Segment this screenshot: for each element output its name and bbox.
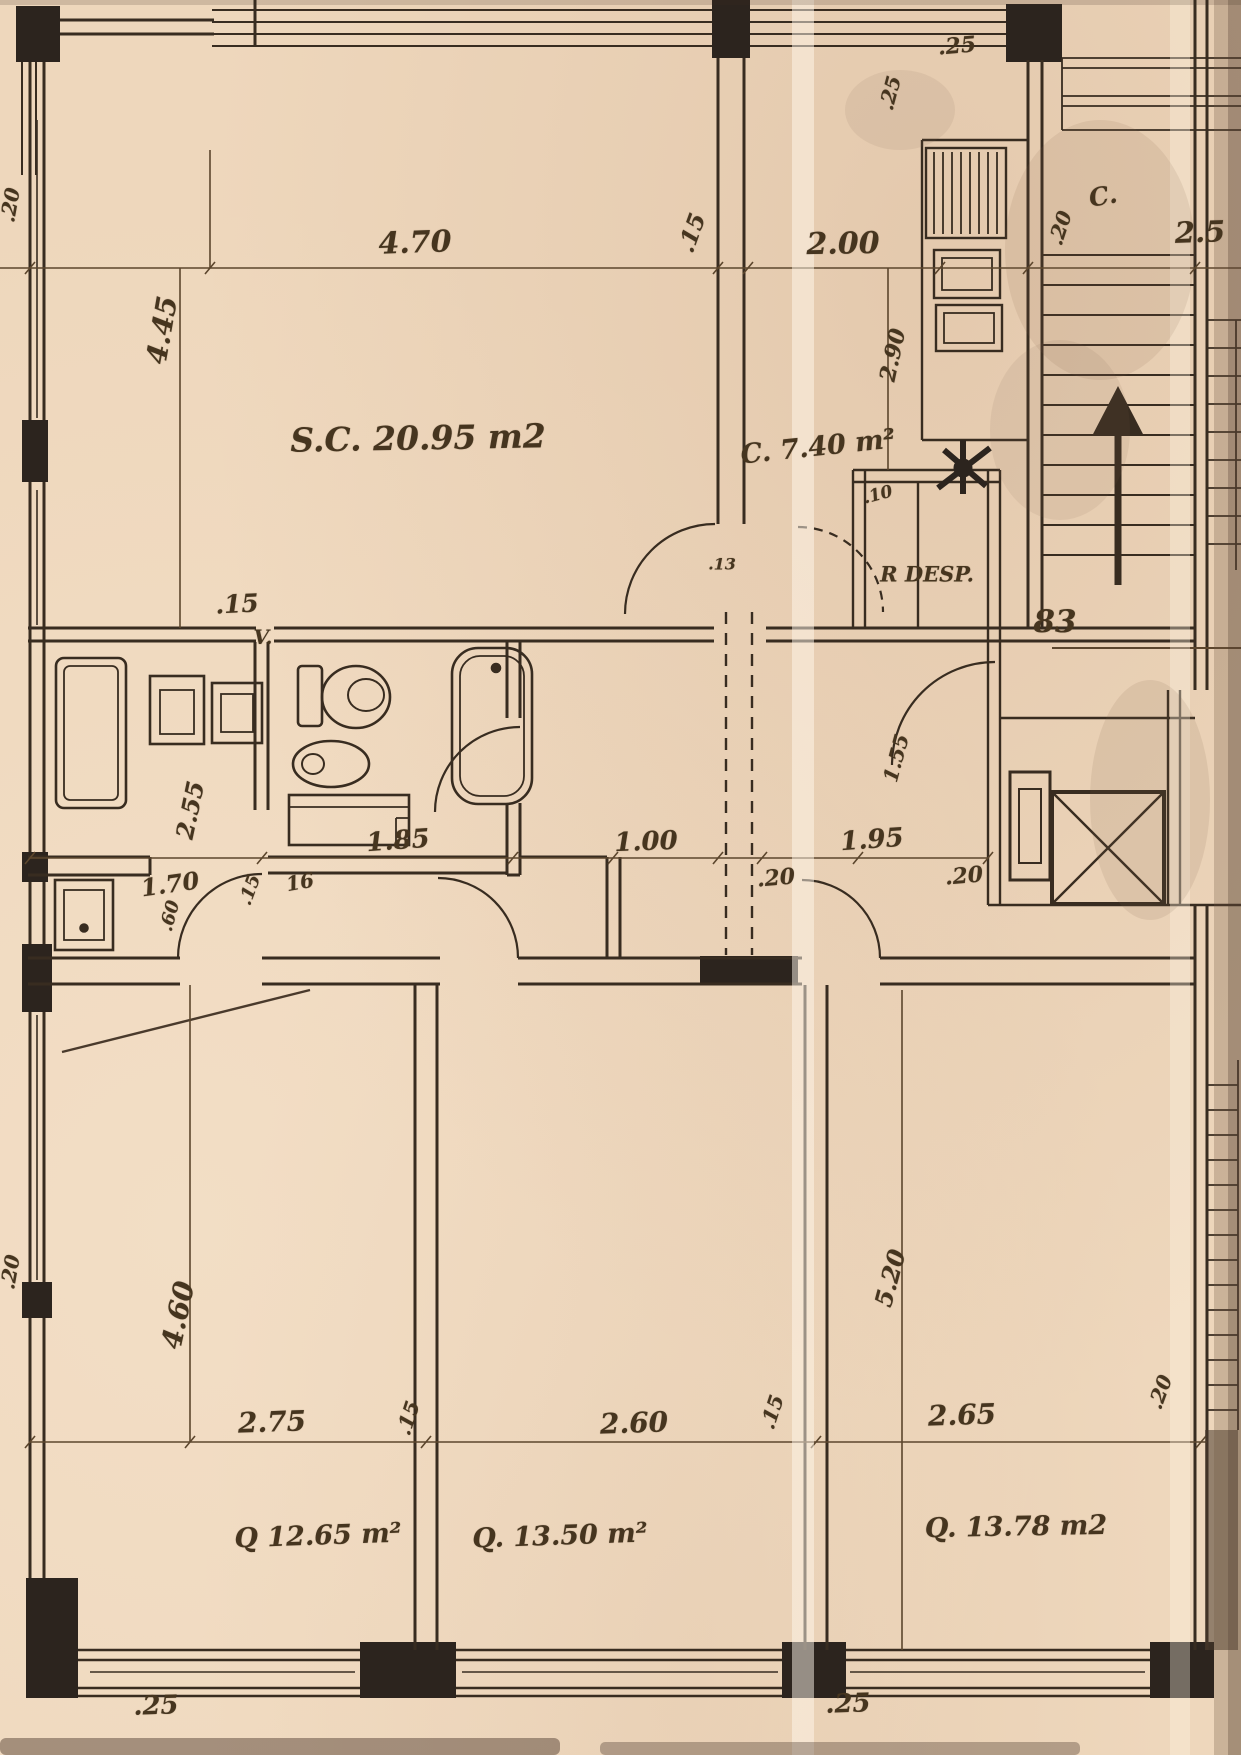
- label-vent: V.: [254, 625, 273, 649]
- toilet-icon: [322, 666, 390, 728]
- dim-250-right: 2.5: [1174, 214, 1226, 250]
- hall-dashed-lines: [726, 612, 752, 955]
- room-pantry: R DESP.: [880, 562, 974, 587]
- room-living: S.C. 20.95 m2: [290, 416, 546, 459]
- bidet-icon: [293, 741, 369, 787]
- dim-275: 2.75: [237, 1404, 306, 1439]
- dim-100: 1.00: [614, 826, 678, 858]
- dim-185: 1.85: [365, 824, 430, 858]
- dim-15-bath: .15: [215, 588, 260, 619]
- dim-470: 4.70: [378, 224, 452, 262]
- dim-25-bottom-r: .25: [825, 1688, 871, 1720]
- ink-blot: [938, 440, 990, 494]
- floor-plan: 4.70.152.00.25.25C..202.54.45S.C. 20.95 …: [0, 0, 1241, 1755]
- dim-195: 1.95: [839, 823, 904, 857]
- room-bedroom-2: Q. 13.50 m²: [472, 1517, 648, 1554]
- dim-13-hall: .13: [708, 555, 736, 574]
- dim-260: 2.60: [599, 1405, 668, 1440]
- toilet-tank-icon: [298, 666, 322, 726]
- dim-16: 16: [284, 868, 316, 896]
- dim-200: 2.00: [806, 226, 880, 262]
- pencil-diagonal: [62, 990, 310, 1052]
- room-bedroom-1: Q 12.65 m²: [234, 1518, 402, 1555]
- living-door-arc: [625, 524, 715, 614]
- sink-drainer-icon: [934, 152, 997, 234]
- room-bedroom-3: Q. 13.78 m2: [925, 1510, 1108, 1544]
- dim-25-top: .25: [937, 31, 977, 60]
- dim-20-hall-l: .20: [756, 863, 796, 892]
- dim-265: 2.65: [927, 1397, 996, 1432]
- laundry-tub-icon: [56, 658, 126, 808]
- bedroom2-door-arc: [438, 878, 518, 958]
- bathroom-door-arc: [435, 727, 520, 812]
- service-fixtures: [55, 658, 262, 950]
- label-unit-83: 83: [1033, 604, 1076, 640]
- label-c-landing: C.: [1087, 179, 1120, 212]
- dim-20-hall-r: .20: [944, 861, 984, 890]
- bathroom-fixtures: [289, 648, 532, 845]
- dim-25-bottom-l: .25: [133, 1690, 179, 1722]
